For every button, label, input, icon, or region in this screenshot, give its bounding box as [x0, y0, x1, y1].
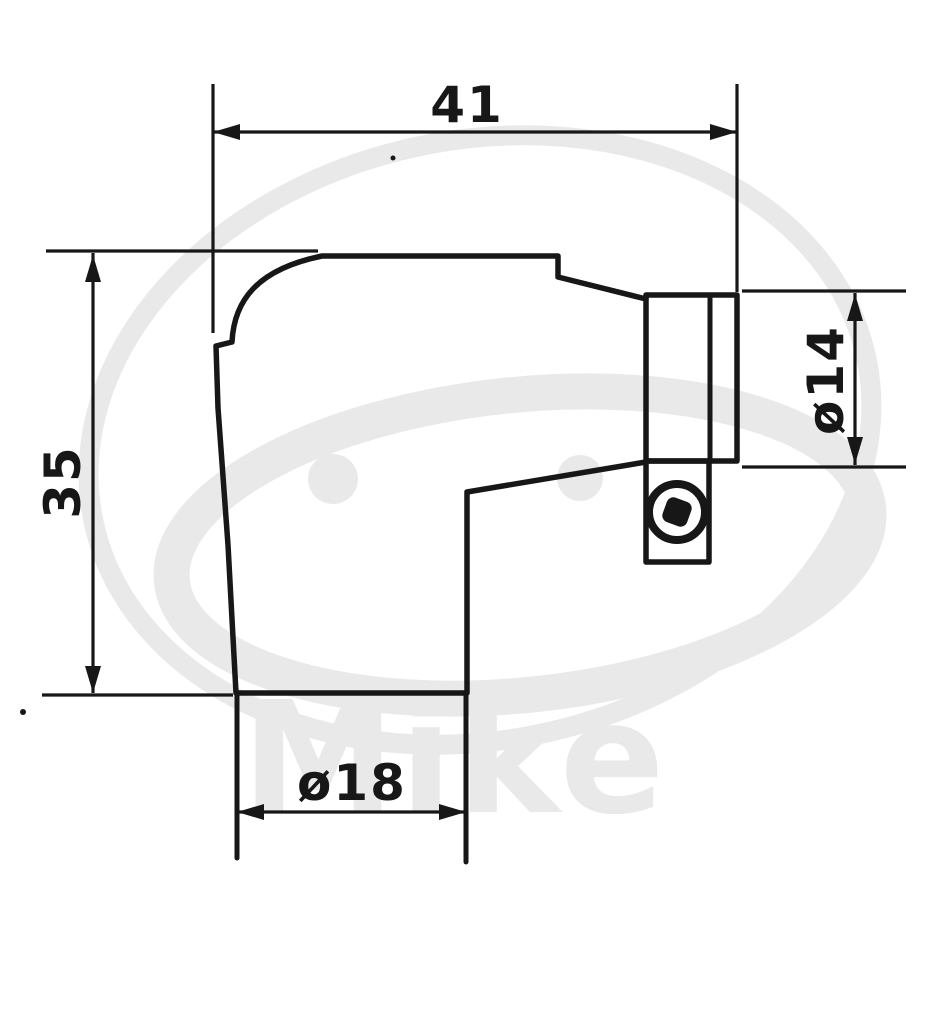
dimension-label-18: ø18 — [297, 754, 407, 812]
arrowhead-41-left — [213, 124, 240, 140]
dimension-label-35: 35 — [34, 445, 92, 519]
watermark: Mike — [31, 64, 928, 849]
arrowhead-41-right — [710, 124, 737, 140]
speck-bottom-left — [20, 709, 26, 715]
dimension-label-14: ø14 — [797, 325, 855, 435]
hex-socket — [660, 495, 693, 528]
speck-top — [391, 156, 396, 161]
arrowhead-35-top — [85, 255, 101, 282]
spark-plug-cap-drawing: Mike 41 — [0, 0, 931, 1024]
technical-drawing-page: Mike 41 — [0, 0, 931, 1024]
watermark-dot-left — [308, 454, 358, 504]
arrowhead-35-bottom — [85, 666, 101, 693]
dimension-label-41: 41 — [430, 76, 504, 134]
